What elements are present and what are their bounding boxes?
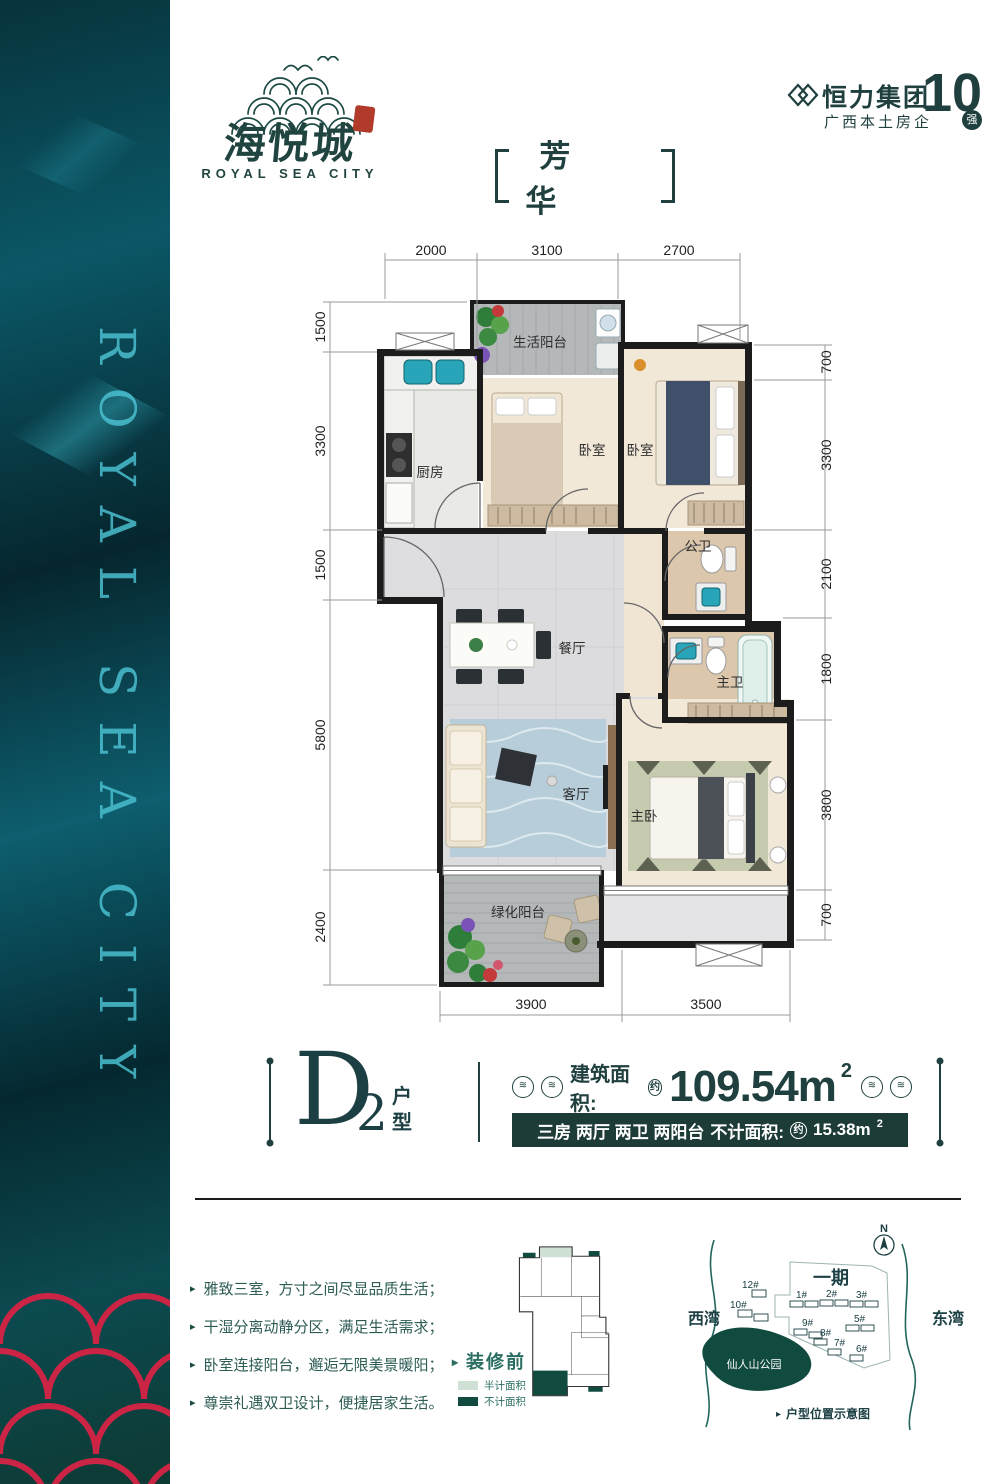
dim-right-2: 3300 xyxy=(818,439,834,470)
feature-text: 雅致三室，方寸之间尽显品质生活； xyxy=(204,1281,444,1298)
room-label-dining: 餐厅 xyxy=(559,641,586,656)
legend-half: 半计面积 xyxy=(458,1378,526,1393)
sink-icon xyxy=(436,360,464,384)
dim-right-6: 700 xyxy=(818,903,834,927)
dim-right-5: 3800 xyxy=(818,789,834,820)
red-scale-pattern xyxy=(0,1289,170,1484)
arrow-icon: ▸ xyxy=(452,1355,460,1369)
section-divider xyxy=(195,1198,961,1200)
building-label: 12# xyxy=(742,1280,759,1291)
excl-superscript: 2 xyxy=(877,1118,883,1130)
legend-none-swatch xyxy=(458,1397,478,1406)
room-label-bedroom-a: 卧室 xyxy=(579,442,606,458)
east-bay-label: 东湾 xyxy=(932,1309,964,1328)
room-label-kitchen: 厨房 xyxy=(417,465,444,480)
location-map: 一期 12# 10# 1# 2# 3# 9# 8# 5# 7# xyxy=(676,1222,982,1440)
vertical-rule-middle xyxy=(478,1062,480,1142)
banner-vertical-title: ROYAL SEA CITY xyxy=(88,326,146,1102)
vertical-rule-left xyxy=(264,1056,276,1148)
area-line: ≋ ≋ 建筑面积: 约 109.54m 2 ≋ ≋ xyxy=(512,1064,912,1110)
feature-item: ▸干湿分离动静分区，满足生活需求； xyxy=(190,1316,440,1337)
building-label: 6# xyxy=(856,1344,868,1355)
developer-name: 恒力集团 xyxy=(822,78,930,114)
compass-n-label: N xyxy=(880,1223,888,1235)
unit-title: 芳 华 xyxy=(495,150,675,202)
building-label: 5# xyxy=(854,1314,866,1325)
wave-ornament-icon: ≋ xyxy=(861,1076,883,1098)
bracket-right xyxy=(661,149,675,203)
feature-text: 干湿分离动静分区，满足生活需求； xyxy=(204,1319,444,1336)
arrow-icon: ▸ xyxy=(190,1359,196,1371)
feature-text: 卧室连接阳台，邂逅无限美景暖阳； xyxy=(204,1357,444,1374)
bracket-left xyxy=(495,149,509,203)
living-furniture xyxy=(446,719,619,857)
feature-item: ▸雅致三室，方寸之间尽显品质生活； xyxy=(190,1278,440,1299)
room-label-life-balcony: 生活阳台 xyxy=(513,335,567,350)
wave-ornament-icon: ≋ xyxy=(890,1076,912,1098)
mini-excluded-area xyxy=(533,1371,568,1396)
dim-right-3: 2100 xyxy=(818,558,834,589)
mini-plan-marker: ▸装修前 xyxy=(452,1348,526,1374)
developer-rank-word: 强 xyxy=(962,110,982,130)
dim-right-4: 1800 xyxy=(818,653,834,684)
area-value: 109.54m xyxy=(669,1062,836,1112)
basin-icon xyxy=(702,588,720,606)
approx-circle: 约 xyxy=(790,1122,807,1139)
spec-rooms: 三房 两厅 两卫 两阳台 xyxy=(537,1118,704,1143)
area-superscript: 2 xyxy=(841,1060,852,1083)
feature-list: ▸雅致三室，方寸之间尽显品质生活； ▸干湿分离动静分区，满足生活需求； ▸卧室连… xyxy=(190,1278,440,1430)
map-caption: ▸ 户型位置示意图 xyxy=(776,1406,870,1421)
mini-plan-marker-text: 装修前 xyxy=(466,1352,526,1372)
legend-none: 不计面积 xyxy=(458,1394,526,1409)
dim-bottom-2: 3500 xyxy=(690,996,721,1012)
dim-top-2: 3100 xyxy=(531,242,562,258)
tv-icon xyxy=(603,765,608,809)
arrow-icon: ▸ xyxy=(190,1283,196,1295)
dim-left-2: 3300 xyxy=(312,425,328,456)
building-label: 9# xyxy=(802,1318,814,1329)
feature-text: 尊崇礼遇双卫设计，便捷居家生活。 xyxy=(204,1395,444,1412)
dining-table-icon xyxy=(450,623,534,667)
arrow-icon: ▸ xyxy=(190,1397,196,1409)
area-label: 建筑面积: xyxy=(570,1058,641,1116)
legend-half-label: 半计面积 xyxy=(484,1378,526,1393)
room-label-bedroom-b: 卧室 xyxy=(627,442,654,458)
mini-half-area xyxy=(539,1247,572,1257)
entry-floor xyxy=(384,531,442,599)
dim-bottom-1: 3900 xyxy=(515,996,546,1012)
logo-english-name: ROYAL SEA CITY xyxy=(188,166,392,181)
unit-title-text: 芳 华 xyxy=(525,131,644,221)
east-shoreline xyxy=(902,1244,915,1430)
building-label: 10# xyxy=(730,1300,747,1311)
sink-icon xyxy=(404,360,432,384)
fridge-icon xyxy=(386,483,412,523)
dim-top-1: 2000 xyxy=(415,242,446,258)
logo-seal xyxy=(352,105,375,133)
wardrobe-icon xyxy=(688,501,744,525)
room-label-green-balcony: 绿化阳台 xyxy=(491,905,545,920)
dim-top-3: 2700 xyxy=(663,242,694,258)
south-corridor-floor xyxy=(604,893,788,941)
dim-right-1: 700 xyxy=(818,350,834,374)
building-label: 7# xyxy=(834,1338,846,1349)
building-label: 1# xyxy=(796,1290,808,1301)
spec-band: 三房 两厅 两卫 两阳台 不计面积: 约 15.38m 2 xyxy=(512,1113,908,1147)
feature-item: ▸尊崇礼遇双卫设计，便捷居家生活。 xyxy=(190,1392,440,1413)
west-shoreline xyxy=(706,1240,716,1427)
corridor-floor xyxy=(624,531,664,697)
building-label: 8# xyxy=(820,1328,832,1339)
arrow-icon: ▸ xyxy=(190,1321,196,1333)
developer-tagline: 广西本土房企 xyxy=(824,111,932,132)
arrow-icon: ▸ xyxy=(776,1409,781,1420)
wave-ornament-icon: ≋ xyxy=(541,1076,563,1098)
room-label-living: 客厅 xyxy=(563,786,590,802)
feature-item: ▸卧室连接阳台，邂逅无限美景暖阳； xyxy=(190,1354,440,1375)
legend-half-swatch xyxy=(458,1381,478,1390)
compass-icon: N xyxy=(874,1223,894,1255)
building-label: 3# xyxy=(856,1290,868,1301)
room-label-master-bath: 主卫 xyxy=(717,675,744,690)
unit-number: 2 xyxy=(356,1088,388,1138)
approx-circle: 约 xyxy=(648,1079,662,1096)
map-caption-text: 户型位置示意图 xyxy=(786,1406,870,1421)
toilet-icon xyxy=(706,648,726,674)
poster-page: ROYAL SEA CITY 海悦城 ROYAL SEA CITY 恒力集团 广… xyxy=(0,0,1000,1484)
vertical-rule-right xyxy=(934,1056,946,1148)
dim-left-5: 2400 xyxy=(312,911,328,942)
room-label-guest-bath: 公卫 xyxy=(685,539,712,554)
west-bay-label: 西湾 xyxy=(688,1309,720,1328)
excl-label: 不计面积: xyxy=(710,1118,784,1143)
unit-type-label: 户型 xyxy=(392,1084,414,1136)
legend-none-label: 不计面积 xyxy=(484,1394,526,1409)
dim-left-1: 1500 xyxy=(312,311,328,342)
dim-left-4: 5800 xyxy=(312,719,328,750)
park-label: 仙人山公园 xyxy=(727,1358,782,1371)
dim-left-3: 1500 xyxy=(312,549,328,580)
plant-icon xyxy=(634,359,646,371)
floor-plan: 生活阳台 厨房 卧室 卧室 公卫 餐厅 主卫 客厅 主卧 绿化阳台 2000 3… xyxy=(300,225,860,1055)
room-label-master-bedroom: 主卧 xyxy=(631,809,658,824)
wave-ornament-icon: ≋ xyxy=(512,1076,534,1098)
developer-diamond-icon xyxy=(786,82,820,108)
excl-value: 15.38m xyxy=(813,1120,871,1140)
phase-label: 一期 xyxy=(813,1268,849,1288)
building-label: 2# xyxy=(826,1289,838,1300)
